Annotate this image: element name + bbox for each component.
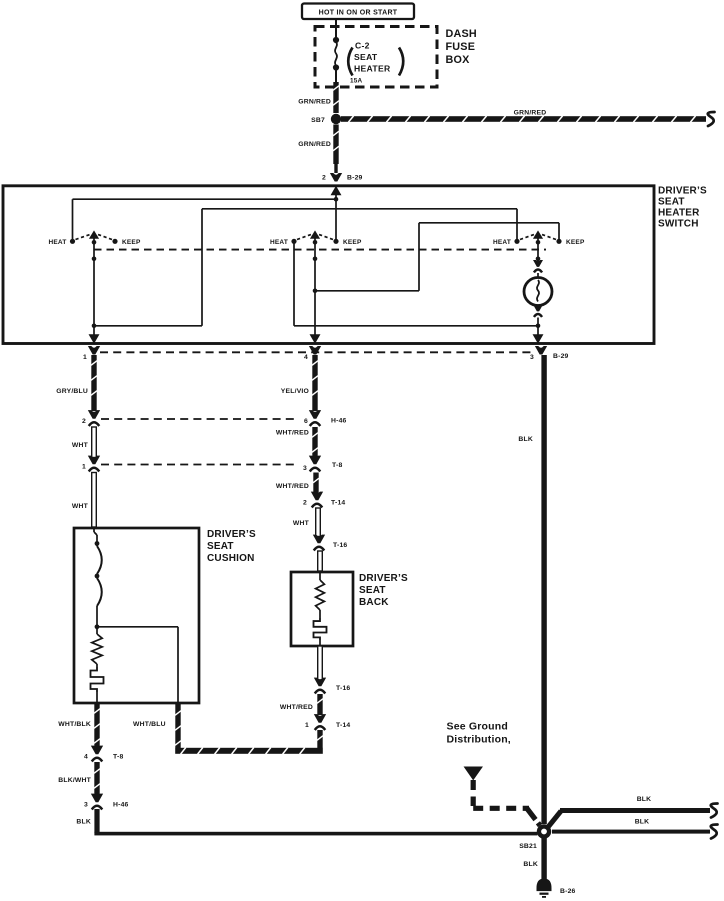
svg-text:T-14: T-14 [336, 722, 350, 729]
svg-text:HOT IN ON OR START: HOT IN ON OR START [319, 9, 398, 16]
svg-text:WHT: WHT [72, 503, 89, 510]
svg-text:YEL/VIO: YEL/VIO [281, 388, 309, 395]
svg-text:HEAT: HEAT [48, 239, 66, 246]
svg-text:WHT/BLU: WHT/BLU [133, 721, 166, 728]
svg-text:H-46: H-46 [113, 802, 129, 809]
svg-text:KEEP: KEEP [122, 239, 141, 246]
svg-text:BLK/WHT: BLK/WHT [58, 777, 91, 784]
svg-text:WHT: WHT [72, 442, 89, 449]
svg-text:BACK: BACK [359, 597, 389, 608]
svg-text:T-14: T-14 [331, 500, 345, 507]
svg-text:T-16: T-16 [336, 685, 350, 692]
svg-text:KEEP: KEEP [566, 239, 585, 246]
svg-text:1: 1 [305, 722, 309, 729]
svg-text:See Ground: See Ground [447, 721, 509, 733]
svg-text:Distribution,: Distribution, [447, 734, 511, 746]
svg-text:3: 3 [84, 802, 88, 809]
svg-text:SEAT: SEAT [658, 197, 685, 208]
svg-text:2: 2 [322, 175, 326, 182]
svg-text:4: 4 [304, 354, 308, 361]
svg-text:CUSHION: CUSHION [207, 553, 255, 564]
svg-text:B-29: B-29 [553, 353, 569, 360]
svg-text:SB21: SB21 [519, 843, 537, 850]
svg-text:SEAT: SEAT [207, 541, 234, 552]
svg-text:SWITCH: SWITCH [658, 219, 699, 230]
svg-text:WHT/BLK: WHT/BLK [58, 721, 91, 728]
svg-text:SEAT: SEAT [354, 52, 378, 62]
svg-text:DRIVER’S: DRIVER’S [658, 186, 707, 197]
svg-text:DASH: DASH [446, 28, 477, 40]
svg-text:4: 4 [84, 754, 88, 761]
svg-text:WHT: WHT [293, 520, 310, 527]
svg-text:6: 6 [304, 418, 308, 425]
svg-text:T-8: T-8 [332, 462, 342, 469]
svg-text:HEATER: HEATER [658, 208, 700, 219]
svg-text:SEAT: SEAT [359, 585, 386, 596]
svg-text:T-8: T-8 [113, 754, 123, 761]
svg-text:BLK: BLK [635, 819, 650, 826]
svg-text:HEATER: HEATER [354, 64, 391, 74]
svg-text:WHT/RED: WHT/RED [280, 704, 313, 711]
svg-text:DRIVER’S: DRIVER’S [359, 573, 408, 584]
svg-text:T-16: T-16 [333, 542, 347, 549]
svg-text:3: 3 [530, 354, 534, 361]
svg-text:BLK: BLK [76, 819, 91, 826]
svg-text:HEAT: HEAT [493, 239, 511, 246]
svg-text:1: 1 [82, 464, 86, 471]
svg-text:BLK: BLK [523, 861, 538, 868]
svg-text:DRIVER’S: DRIVER’S [207, 529, 256, 540]
svg-text:2: 2 [82, 418, 86, 425]
svg-text:C-2: C-2 [355, 41, 370, 51]
svg-text:WHT/RED: WHT/RED [276, 483, 309, 490]
svg-text:GRN/RED: GRN/RED [514, 110, 547, 117]
svg-text:15A: 15A [350, 77, 363, 84]
svg-text:GRN/RED: GRN/RED [298, 99, 331, 106]
svg-text:HEAT: HEAT [270, 239, 288, 246]
svg-text:GRN/RED: GRN/RED [298, 141, 331, 148]
svg-text:BLK: BLK [518, 436, 533, 443]
svg-text:WHT/RED: WHT/RED [276, 430, 309, 437]
svg-text:BLK: BLK [637, 796, 652, 803]
svg-text:GRY/BLU: GRY/BLU [56, 388, 88, 395]
svg-text:3: 3 [303, 465, 307, 472]
svg-text:B-29: B-29 [347, 175, 363, 182]
svg-text:1: 1 [83, 354, 87, 361]
svg-text:SB7: SB7 [311, 117, 325, 124]
svg-text:FUSE: FUSE [446, 41, 476, 53]
svg-text:2: 2 [303, 500, 307, 507]
svg-text:BOX: BOX [446, 54, 471, 66]
svg-text:B-26: B-26 [560, 888, 576, 895]
svg-text:H-46: H-46 [331, 418, 347, 425]
svg-text:KEEP: KEEP [343, 239, 362, 246]
